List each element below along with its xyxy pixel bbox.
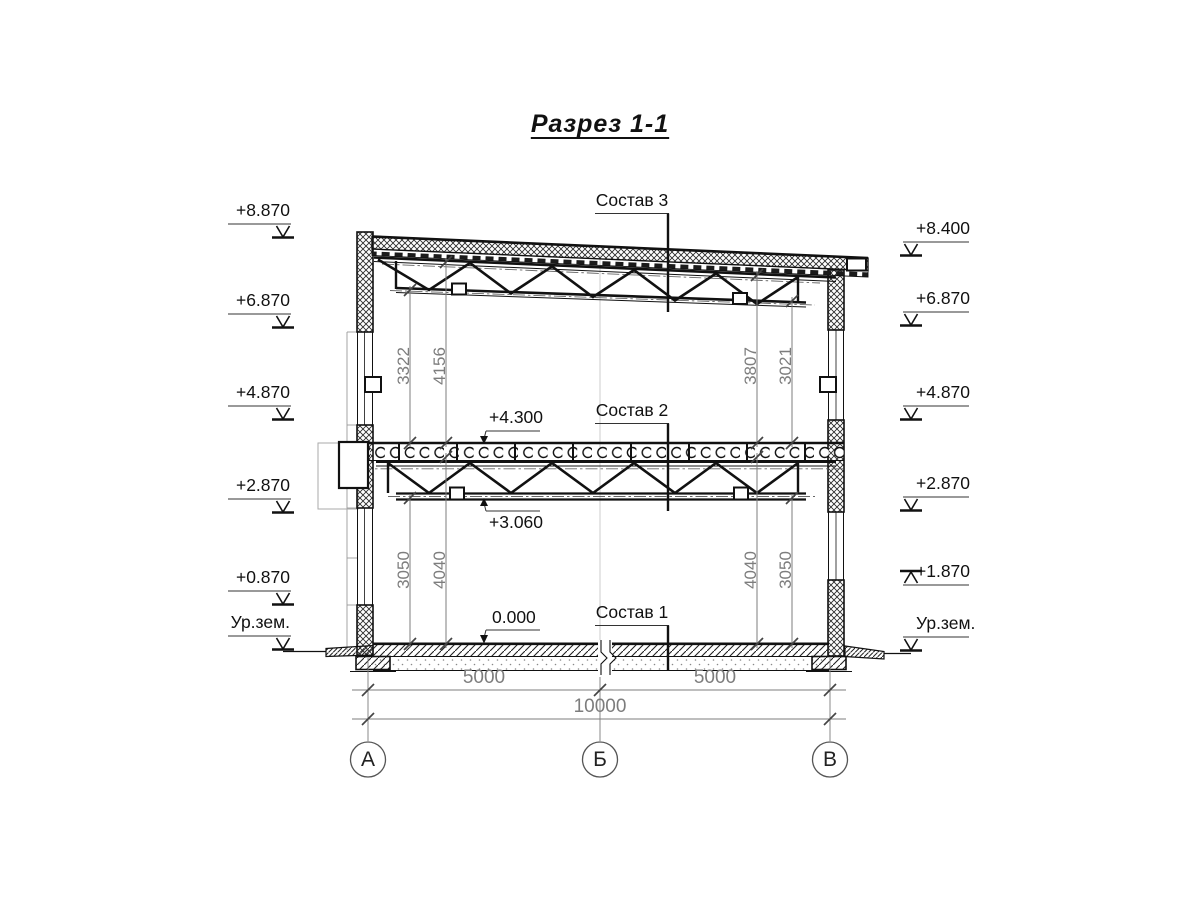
dim-upper-right-1: 3021 xyxy=(777,334,795,398)
truss-bearing-pad xyxy=(452,284,466,295)
drawing-sheet: Разрез 1-1 +8.870 +6.870 +4.870 +2.870 +… xyxy=(0,0,1200,900)
elevation-left-2: +4.870 xyxy=(228,384,290,402)
building-section xyxy=(228,214,969,778)
dim-upper-right-0: 3807 xyxy=(742,334,760,398)
truss-bearing-pad xyxy=(733,293,747,304)
axis-bubble-v: В xyxy=(808,749,852,770)
dim-total: 10000 xyxy=(555,697,645,716)
elevation-right-2: +4.870 xyxy=(916,384,996,402)
truss-bearing-pad xyxy=(734,488,748,500)
elevation-right-4: +1.870 xyxy=(916,563,996,581)
dim-span-bc: 5000 xyxy=(670,668,760,687)
elevation-left-4: +0.870 xyxy=(228,569,290,587)
dim-upper-left-0: 3322 xyxy=(395,334,413,398)
middle-truss xyxy=(360,462,843,500)
elevation-right-3: +2.870 xyxy=(916,475,996,493)
apron-left xyxy=(326,646,373,657)
axis-bubble-a: А xyxy=(346,749,390,770)
label-level-3060: +3.060 xyxy=(489,514,559,532)
dim-span-ab: 5000 xyxy=(439,668,529,687)
apron-right xyxy=(845,646,884,659)
axis-bubble-b: Б xyxy=(578,749,622,770)
dim-lower-left-1: 4040 xyxy=(431,538,449,602)
eaves-end-cap xyxy=(847,259,866,271)
right-wall-fixture xyxy=(820,377,836,392)
dim-lower-right-0: 4040 xyxy=(742,538,760,602)
label-sostav-2: Состав 2 xyxy=(562,402,702,420)
right-wall xyxy=(828,270,844,656)
elevation-right-1: +6.870 xyxy=(916,290,996,308)
left-facade-joints xyxy=(347,332,357,650)
elevation-left-1: +6.870 xyxy=(228,292,290,310)
truss-bearing-pad xyxy=(450,488,464,500)
elevation-left-0: +8.870 xyxy=(228,202,290,220)
dim-upper-left-1: 4156 xyxy=(431,334,449,398)
elevation-left-5: Ур.зем. xyxy=(228,614,290,632)
dim-lower-right-1: 3050 xyxy=(777,538,795,602)
dim-lower-left-0: 3050 xyxy=(395,538,413,602)
left-wall-fixture xyxy=(365,377,381,392)
left-console-box xyxy=(339,442,368,488)
label-level-4300: +4.300 xyxy=(489,409,559,427)
label-sostav-1: Состав 1 xyxy=(562,604,702,622)
elevation-right-5: Ур.зем. xyxy=(916,615,996,633)
elevation-left-3: +2.870 xyxy=(228,477,290,495)
label-level-0000: 0.000 xyxy=(492,609,562,627)
drawing-title: Разрез 1-1 xyxy=(470,112,730,137)
label-sostav-3: Состав 3 xyxy=(562,192,702,210)
elevation-right-0: +8.400 xyxy=(916,220,996,238)
middle-floor-slab xyxy=(358,443,844,461)
